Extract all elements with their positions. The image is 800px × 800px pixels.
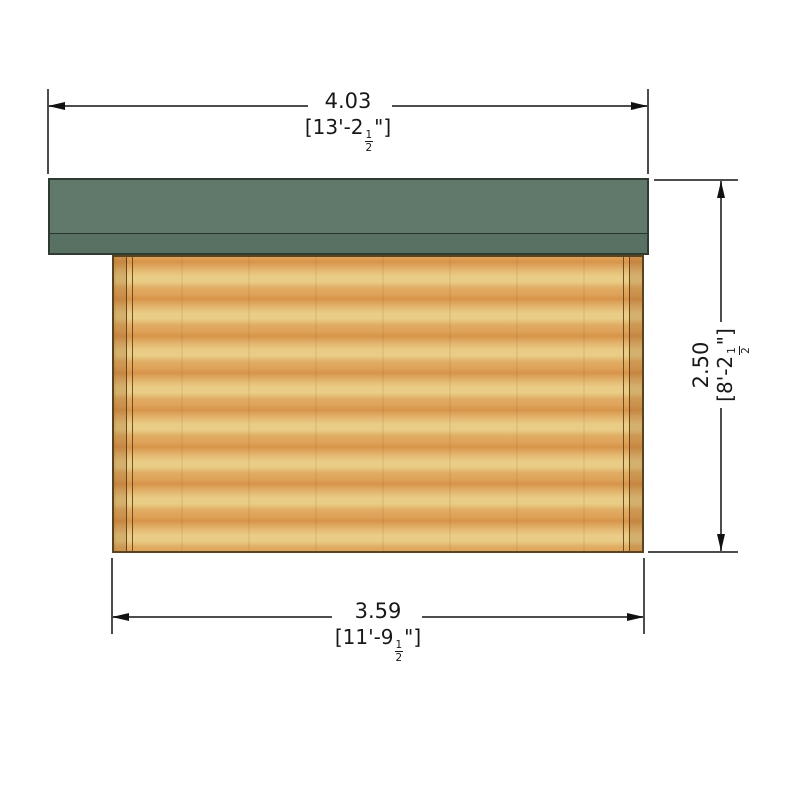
top-imperial-fraction: 12 <box>365 130 374 154</box>
extension-line-bottom-left <box>111 558 113 634</box>
log-wall <box>112 255 644 553</box>
bottom-imperial-fraction: 12 <box>395 640 404 664</box>
dimension-arrow-top-right-icon <box>631 102 648 110</box>
dimension-arrow-top-left-icon <box>48 102 65 110</box>
extension-line-right-top <box>654 179 738 181</box>
top-fraction-numerator: 1 <box>365 130 374 142</box>
right-fraction-denominator: 2 <box>740 347 751 354</box>
extension-line-bottom-right <box>643 558 645 634</box>
corner-post-left <box>114 257 127 551</box>
elevation-diagram: 4.03 [13'-212"] 2.50 [8'-212"] 3.59 [11'… <box>0 0 800 800</box>
right-imperial-suffix: "] <box>713 328 737 345</box>
top-imperial-suffix: "] <box>374 115 391 139</box>
right-height-imperial-value: [8'-212"] <box>713 328 751 402</box>
bottom-fraction-numerator: 1 <box>395 640 404 652</box>
dimension-line-top-segment-2 <box>392 105 648 107</box>
dimension-arrow-right-top-icon <box>717 181 725 198</box>
corner-post-right <box>629 257 642 551</box>
right-imperial-fraction: 12 <box>727 346 751 355</box>
bottom-width-imperial-value: [11'-912"] <box>298 625 458 663</box>
dimension-label-top-width: 4.03 [13'-212"] <box>268 91 428 153</box>
roof <box>48 178 649 255</box>
dimension-label-bottom-width: 3.59 [11'-912"] <box>298 601 458 663</box>
bottom-fraction-denominator: 2 <box>396 652 403 663</box>
extension-line-right-bottom <box>648 551 738 553</box>
dimension-arrow-bottom-right-icon <box>627 613 644 621</box>
right-imperial-prefix: [8'-2 <box>713 356 737 402</box>
right-fraction-numerator: 1 <box>727 346 739 355</box>
dimension-label-right-height: 2.50 [8'-212"] <box>695 295 747 435</box>
corner-post-left-joint-line <box>132 257 133 551</box>
right-height-metric-value: 2.50 <box>691 342 712 389</box>
corner-post-right-joint-line <box>623 257 624 551</box>
top-imperial-prefix: [13'-2 <box>305 115 364 139</box>
dimension-arrow-bottom-left-icon <box>112 613 129 621</box>
top-fraction-denominator: 2 <box>366 142 373 153</box>
top-width-imperial-value: [13'-212"] <box>268 115 428 153</box>
top-width-metric-value: 4.03 <box>268 91 428 112</box>
bottom-width-metric-value: 3.59 <box>298 601 458 622</box>
roof-fascia-board <box>50 233 647 253</box>
dimension-arrow-right-bottom-icon <box>717 534 725 551</box>
bottom-imperial-prefix: [11'-9 <box>335 625 394 649</box>
bottom-imperial-suffix: "] <box>404 625 421 649</box>
